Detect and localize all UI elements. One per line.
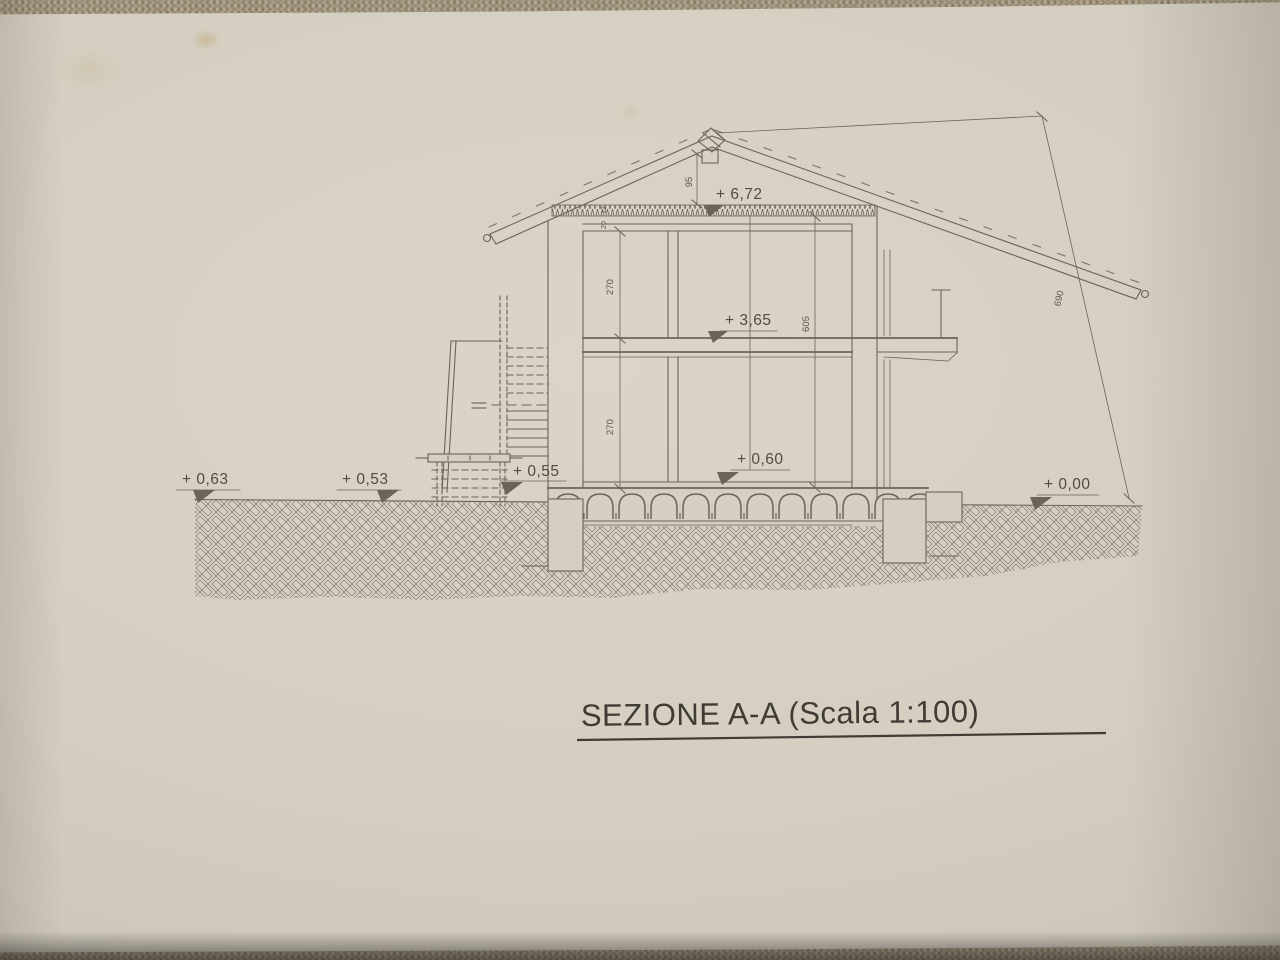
level-label-terrain-left: + 0,63 (182, 471, 229, 488)
dim-interior-total: 605 (801, 316, 812, 332)
dim-room-upper: 270 (605, 279, 616, 295)
left-pier (548, 499, 583, 571)
drawing-title-group: SEZIONE A-A (Scala 1:100) (577, 694, 1106, 740)
gutter-hook-left (484, 235, 491, 242)
level-label-floor1: + 3,65 (725, 312, 772, 329)
level-marker-terrain-right: + 0,00 (1030, 476, 1099, 510)
level-label-terrain-right: + 0,00 (1044, 476, 1091, 493)
level-marker-terrain-mid: + 0,53 (337, 471, 401, 503)
ground-floor-slab (548, 482, 928, 525)
dim-layer-a: 12 (601, 206, 608, 214)
level-marker-terrain-left: + 0,63 (176, 471, 240, 503)
right-step (926, 492, 962, 522)
level-label-landing: + 0,55 (513, 463, 560, 480)
gutter-hook-right (1142, 291, 1149, 298)
dim-overall-height: 690 (1052, 289, 1066, 307)
vault-elements (552, 489, 926, 520)
dim-room-lower: 270 (605, 419, 616, 435)
level-label-ridge: + 6,72 (716, 186, 763, 203)
dim-layer-b: 20 (601, 221, 608, 229)
ridge-detail (702, 150, 718, 163)
stair-treads-hidden (507, 348, 548, 393)
dim-ridge-rise: 95 (684, 177, 695, 188)
level-label-floor0: + 0,60 (737, 451, 784, 468)
drawing-title: SEZIONE A-A (Scala 1:100) (581, 694, 980, 733)
section-drawing: 270 270 12 20 605 95 690 + 6,72 + 3,65 (0, 0, 1280, 960)
level-label-terrain-mid: + 0,53 (342, 471, 389, 488)
right-pier (883, 499, 926, 563)
level-marker-floor0: + 0,60 (717, 451, 790, 485)
stair-landing-slab (428, 454, 510, 462)
title-underline (577, 733, 1106, 740)
stair-treads (507, 411, 548, 456)
level-markers: + 6,72 + 3,65 + 0,60 + 0,63 + 0,53 + 0,5… (176, 186, 1099, 510)
dimension-lines: 270 270 12 20 605 95 690 (601, 112, 1134, 503)
